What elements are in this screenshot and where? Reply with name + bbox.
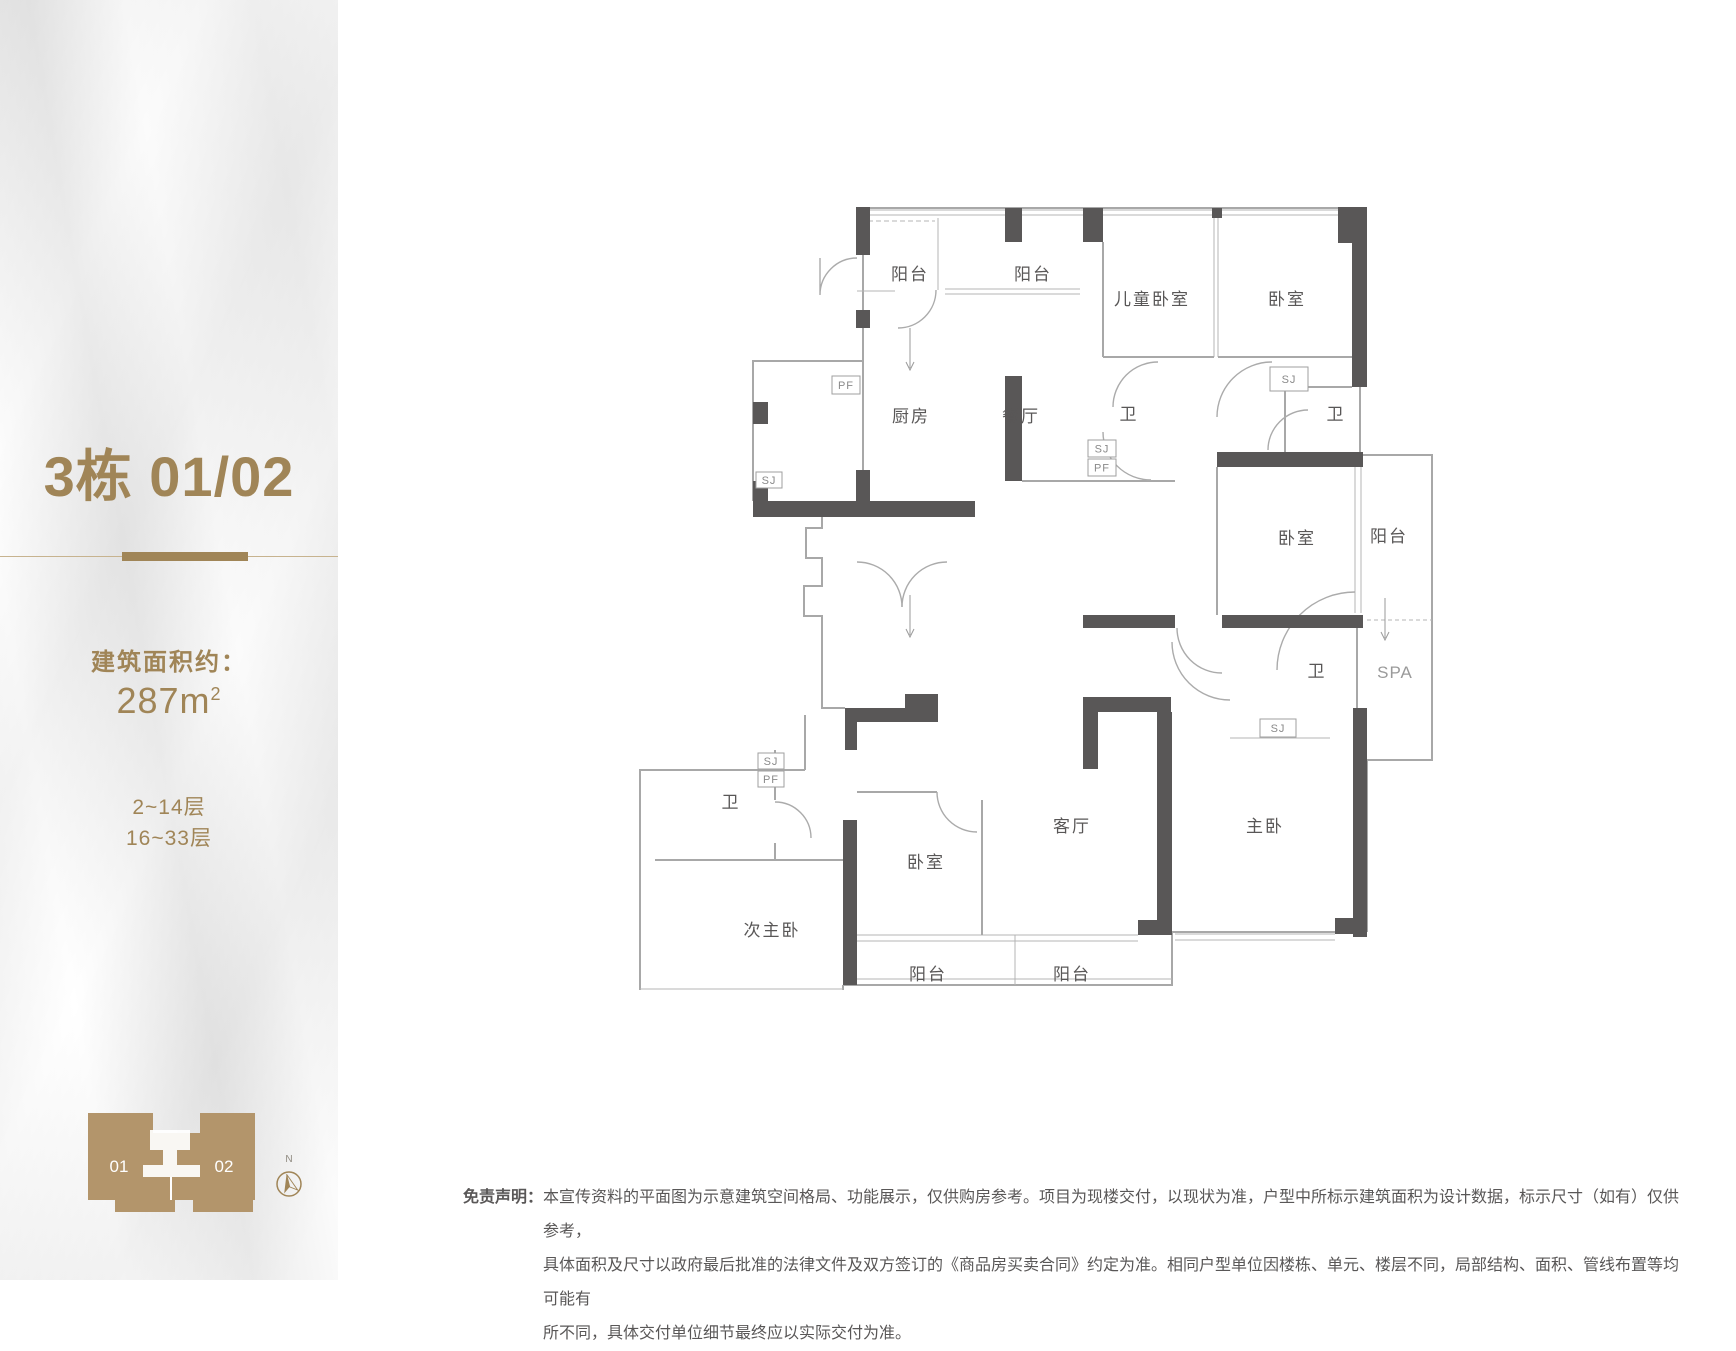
room-label-7: 卫 xyxy=(1327,405,1346,424)
equipment-tags: PFSJSJPFSJSJSJPF xyxy=(756,367,1308,787)
core-top xyxy=(150,1130,190,1150)
tag-label-sj-4: SJ xyxy=(1282,374,1297,386)
room-label-0: 阳台 xyxy=(891,265,929,284)
room-label-18: 阳台 xyxy=(1053,965,1091,984)
disclaimer-label: 免责声明： xyxy=(463,1181,543,1215)
tag-label-sj-1: SJ xyxy=(762,475,777,487)
room-label-8: 卧室 xyxy=(1278,529,1316,548)
disclaimer: 免责声明： 本宣传资料的平面图为示意建筑空间格局、功能展示，仅供购房参考。项目为… xyxy=(463,1181,1693,1351)
plan-outline xyxy=(640,208,1432,990)
divider-bar xyxy=(122,552,248,561)
room-label-17: 阳台 xyxy=(909,965,947,984)
room-label-14: 卧室 xyxy=(907,853,945,872)
area-number: 287m xyxy=(116,680,210,721)
room-label-6: 卫 xyxy=(1120,405,1139,424)
room-label-11: SPA xyxy=(1377,663,1413,682)
area-label: 建筑面积约： xyxy=(0,642,338,677)
room-label-10: 卫 xyxy=(1308,662,1327,681)
area-superscript: 2 xyxy=(211,684,222,704)
compass-icon: N xyxy=(268,1148,312,1204)
room-label-3: 卧室 xyxy=(1268,290,1306,309)
room-label-12: 客厅 xyxy=(1053,817,1091,836)
unit-title: 3栋 01/02 xyxy=(0,432,338,513)
tag-label-pf-0: PF xyxy=(838,380,854,392)
disclaimer-text: 本宣传资料的平面图为示意建筑空间格局、功能展示，仅供购房参考。项目为现楼交付，以… xyxy=(543,1181,1693,1351)
disclaimer-line-3: 所不同，具体交付单位细节最终应以实际交付为准。 xyxy=(543,1317,1693,1351)
room-label-15: 次主卧 xyxy=(744,921,801,940)
disclaimer-line-1: 本宣传资料的平面图为示意建筑空间格局、功能展示，仅供购房参考。项目为现楼交付，以… xyxy=(543,1181,1693,1249)
info-sidebar: 3栋 01/02 建筑面积约： 287m2 2~14层 16~33层 01 02… xyxy=(0,0,338,1280)
north-label: N xyxy=(285,1154,292,1165)
area-value: 287m2 xyxy=(0,680,338,722)
room-label-5: 餐厅 xyxy=(1002,407,1040,426)
floor-range-line2: 16~33层 xyxy=(0,823,338,854)
plan-partitions xyxy=(640,208,1432,989)
tag-label-sj-5: SJ xyxy=(1271,723,1286,735)
floor-range-line1: 2~14层 xyxy=(0,792,338,823)
tag-label-pf-7: PF xyxy=(763,774,779,786)
riser-symbols xyxy=(906,328,1389,640)
tag-label-sj-2: SJ xyxy=(1095,444,1110,456)
tag-label-sj-6: SJ xyxy=(764,756,779,768)
tag-label-pf-3: PF xyxy=(1094,463,1110,475)
compass-needle-light xyxy=(287,1173,298,1192)
floorplan-drawing: 阳台阳台儿童卧室卧室厨房餐厅卫卫卧室阳台卫SPA客厅主卧卧室次主卧卫阳台阳台 P… xyxy=(610,170,1440,990)
floor-range: 2~14层 16~33层 xyxy=(0,792,338,854)
room-label-1: 阳台 xyxy=(1014,265,1052,284)
room-label-2: 儿童卧室 xyxy=(1114,290,1190,309)
structural-walls xyxy=(753,207,1367,985)
building-footprint-icon: 01 02 xyxy=(88,1113,255,1212)
core-stem xyxy=(163,1150,177,1165)
room-label-16: 卫 xyxy=(722,793,741,812)
unit-02-label: 02 xyxy=(215,1157,234,1176)
core-bottom xyxy=(143,1165,200,1177)
room-label-9: 阳台 xyxy=(1370,527,1408,546)
room-label-13: 主卧 xyxy=(1246,817,1284,836)
room-label-4: 厨房 xyxy=(892,407,930,426)
disclaimer-line-2: 具体面积及尺寸以政府最后批准的法律文件及双方签订的《商品房买卖合同》约定为准。相… xyxy=(543,1249,1693,1317)
unit-01-label: 01 xyxy=(110,1157,129,1176)
